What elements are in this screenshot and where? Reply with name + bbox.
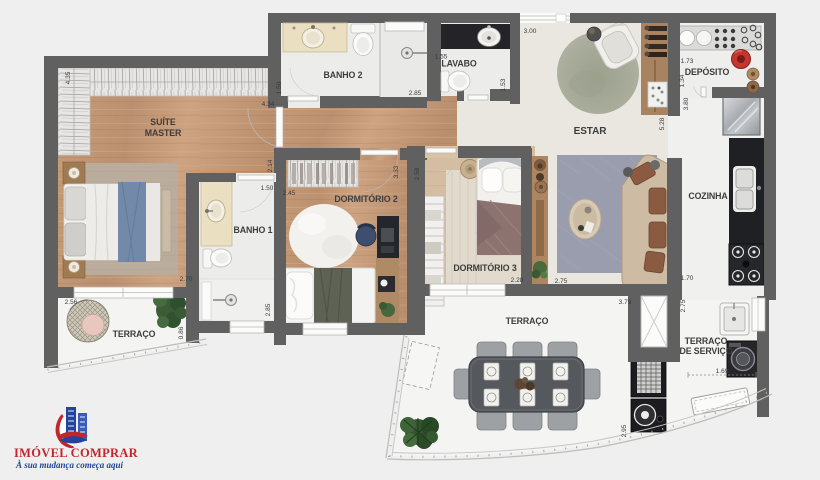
svg-text:0.86: 0.86 — [178, 326, 185, 339]
svg-text:DORMITÓRIO 2: DORMITÓRIO 2 — [334, 193, 398, 204]
svg-text:2.95: 2.95 — [621, 424, 628, 437]
svg-text:2.56: 2.56 — [65, 299, 78, 306]
svg-text:1.50: 1.50 — [276, 81, 283, 94]
svg-text:3.00: 3.00 — [524, 28, 537, 35]
svg-text:3.80: 3.80 — [683, 97, 690, 110]
svg-text:TERRAÇO: TERRAÇO — [685, 336, 728, 346]
svg-text:5.28: 5.28 — [659, 117, 666, 130]
svg-text:2.85: 2.85 — [409, 90, 422, 97]
svg-text:1.34: 1.34 — [679, 74, 686, 87]
svg-text:2.58: 2.58 — [414, 167, 421, 180]
svg-text:2.75: 2.75 — [680, 299, 687, 312]
svg-text:3.79: 3.79 — [619, 299, 632, 306]
svg-text:DEPÓSITO: DEPÓSITO — [685, 66, 730, 77]
svg-text:1.70: 1.70 — [681, 275, 694, 282]
svg-text:TERRAÇO: TERRAÇO — [113, 329, 156, 339]
svg-text:DORMITÓRIO 3: DORMITÓRIO 3 — [453, 262, 517, 273]
svg-text:4.34: 4.34 — [262, 101, 275, 108]
svg-text:DE SERVIÇO: DE SERVIÇO — [679, 346, 732, 356]
svg-text:TERRAÇO: TERRAÇO — [506, 316, 549, 326]
svg-text:2.14: 2.14 — [267, 159, 274, 172]
svg-text:2.85: 2.85 — [265, 303, 272, 316]
svg-text:3.33: 3.33 — [393, 165, 400, 178]
svg-text:À sua mudança começa aqui: À sua mudança começa aqui — [15, 460, 124, 470]
svg-text:4.35: 4.35 — [65, 71, 72, 84]
svg-text:1.69: 1.69 — [716, 368, 729, 375]
svg-text:MASTER: MASTER — [145, 128, 182, 138]
svg-text:2.70: 2.70 — [180, 276, 193, 283]
svg-text:2.75: 2.75 — [555, 278, 568, 285]
svg-text:1.73: 1.73 — [681, 58, 694, 65]
svg-text:1.53: 1.53 — [500, 78, 507, 91]
svg-text:1.55: 1.55 — [435, 54, 448, 61]
svg-text:2.45: 2.45 — [283, 190, 296, 197]
svg-text:COZINHA: COZINHA — [688, 191, 728, 201]
svg-text:SUÍTE: SUÍTE — [150, 117, 176, 127]
svg-text:1.50: 1.50 — [261, 185, 274, 192]
svg-text:2.28: 2.28 — [511, 277, 524, 284]
svg-text:BANHO 2: BANHO 2 — [324, 70, 363, 80]
svg-text:ESTAR: ESTAR — [574, 126, 608, 137]
svg-text:IMÓVEL COMPRAR: IMÓVEL COMPRAR — [14, 446, 139, 460]
svg-text:BANHO 1: BANHO 1 — [234, 225, 273, 235]
